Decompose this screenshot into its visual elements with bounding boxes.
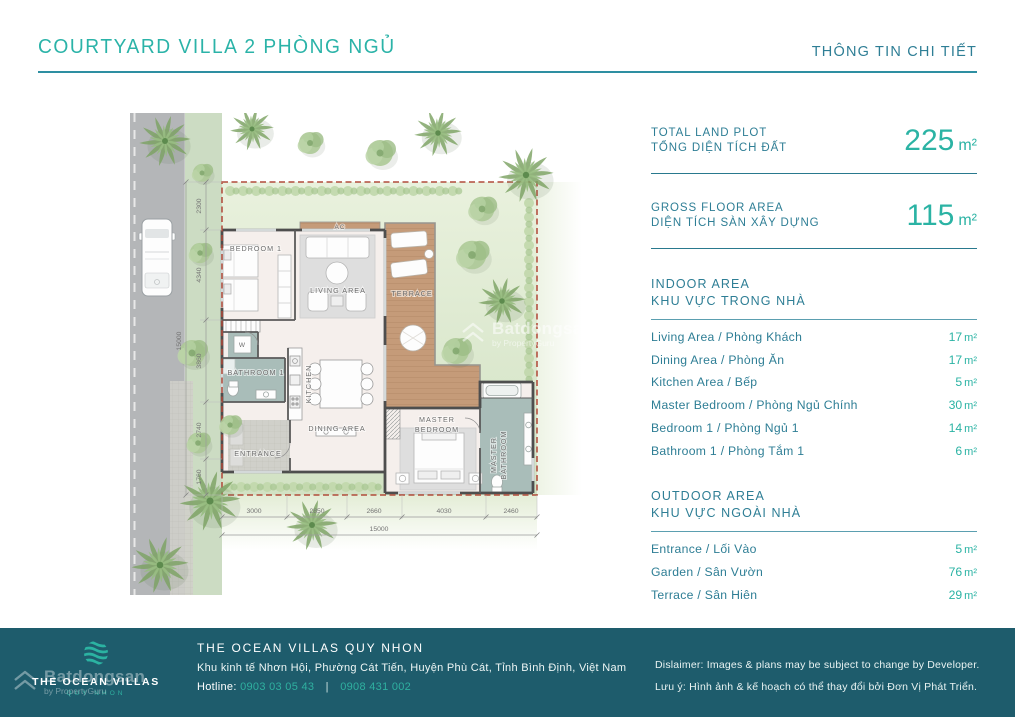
section-title-en: INDOOR AREA (651, 276, 977, 293)
details-panel: TOTAL LAND PLOT TỔNG DIỆN TÍCH ĐẤT 225m²… (651, 126, 977, 607)
room-label-kitchen: KITCHEN (304, 365, 313, 404)
section-divider (651, 319, 977, 320)
hotline-phone-1: 0903 03 05 43 (240, 681, 314, 693)
room-label-master-bedroom: MASTER (419, 415, 455, 424)
section-title-vi: KHU VỰC TRONG NHÀ (651, 293, 977, 310)
room-label-dining: DINING AREA (308, 424, 365, 433)
section-title-vi: KHU VỰC NGOÀI NHÀ (651, 505, 977, 522)
dim-label-total: 15000 (176, 331, 183, 350)
logo-text-line2: QUY NHON (30, 690, 162, 697)
dim-label-total: 15000 (370, 526, 389, 533)
stat-label-vi: TỔNG DIỆN TÍCH ĐẤT (651, 141, 787, 156)
ocean-villas-logo: THE OCEAN VILLAS QUY NHON (30, 638, 162, 697)
stat-value: 115m² (907, 201, 977, 236)
floor-plan-illustration: 3000 2850 2660 4030 2460 15000 2300 4340… (130, 113, 610, 595)
disclaimer-en: Dislaimer: Images & plans may be subject… (655, 654, 979, 676)
dim-label: 2300 (196, 198, 203, 213)
garden-fade-right (537, 182, 582, 495)
brochure-page: COURTYARD VILLA 2 PHÒNG NGỦ THÔNG TIN CH… (0, 0, 1015, 717)
hotline: Hotline: 0903 03 05 43 | 0908 431 002 (197, 681, 626, 693)
disclaimer: Dislaimer: Images & plans may be subject… (655, 654, 979, 698)
area-row: Entrance / Lối Vào5m² (651, 539, 977, 562)
room-label-master-bathroom: BATHROOM (499, 431, 508, 480)
hotline-phone-2: 0908 431 002 (340, 681, 411, 693)
area-row: Bedroom 1 / Phòng Ngủ 114m² (651, 418, 977, 441)
logo-text-line1: THE OCEAN VILLAS (30, 676, 162, 688)
stat-label-en: TOTAL LAND PLOT (651, 126, 787, 141)
dim-label: 4340 (196, 267, 203, 282)
area-row: Living Area / Phòng Khách17m² (651, 327, 977, 350)
stat-label-en: GROSS FLOOR AREA (651, 201, 820, 216)
floor-plan-svg: 3000 2850 2660 4030 2460 15000 2300 4340… (130, 113, 610, 595)
dim-label: 2660 (366, 508, 381, 515)
footer-info: THE OCEAN VILLAS QUY NHON Khu kinh tế Nh… (197, 641, 626, 693)
section-divider (651, 531, 977, 532)
dim-label: 2740 (196, 422, 203, 437)
wave-logo-icon (81, 638, 111, 668)
room-label-ac: AC (334, 224, 345, 231)
dim-label: 2850 (309, 508, 324, 515)
area-row: Garden / Sân Vườn76m² (651, 562, 977, 585)
stat-label-vi: DIỆN TÍCH SÀN XÂY DỰNG (651, 216, 820, 231)
stat-value: 225m² (904, 126, 977, 161)
dim-label: 1760 (196, 469, 203, 484)
room-label-bathroom1: BATHROOM 1 (228, 368, 285, 377)
area-row: Dining Area / Phòng Ăn17m² (651, 350, 977, 373)
outdoor-area-section: OUTDOOR AREA KHU VỰC NGOÀI NHÀ Entrance … (651, 488, 977, 607)
room-label-bedroom1: BEDROOM 1 (230, 244, 282, 253)
dim-label: 2460 (503, 508, 518, 515)
area-row: Bathroom 1 / Phòng Tắm 16m² (651, 441, 977, 464)
car-illustration (139, 219, 175, 296)
page-title: COURTYARD VILLA 2 PHÒNG NGỦ (38, 36, 396, 59)
dim-label: 4030 (436, 508, 451, 515)
section-title-en: OUTDOOR AREA (651, 488, 977, 505)
area-row: Master Bedroom / Phòng Ngủ Chính30m² (651, 395, 977, 418)
hotline-separator: | (326, 681, 329, 693)
company-address: Khu kinh tế Nhơn Hội, Phường Cát Tiến, H… (197, 662, 626, 674)
room-label-washer: W (239, 342, 246, 349)
stat-gross-floor-area: GROSS FLOOR AREA DIỆN TÍCH SÀN XÂY DỰNG … (651, 201, 977, 249)
living-furniture (300, 235, 375, 318)
room-label-living: LIVING AREA (310, 286, 366, 295)
disclaimer-vi: Lưu ý: Hình ảnh & kế hoạch có thể thay đ… (655, 676, 979, 698)
stat-total-land-plot: TOTAL LAND PLOT TỔNG DIỆN TÍCH ĐẤT 225m² (651, 126, 977, 174)
room-label-terrace: TERRACE (391, 289, 432, 298)
hotline-label: Hotline: (197, 681, 237, 693)
details-heading: THÔNG TIN CHI TIẾT (812, 44, 977, 60)
dim-label: 3860 (196, 353, 203, 368)
area-row: Terrace / Sân Hiên29m² (651, 585, 977, 608)
footer: THE OCEAN VILLAS QUY NHON THE OCEAN VILL… (0, 628, 1015, 717)
company-name: THE OCEAN VILLAS QUY NHON (197, 641, 626, 655)
indoor-area-section: INDOOR AREA KHU VỰC TRONG NHÀ Living Are… (651, 276, 977, 463)
room-label-master-bathroom: MASTER (489, 437, 498, 473)
room-label-entrance: ENTRANCE (234, 449, 282, 458)
dim-label: 3000 (246, 508, 261, 515)
area-row: Kitchen Area / Bếp5m² (651, 372, 977, 395)
room-label-master-bedroom: BEDROOM (415, 425, 459, 434)
garden-fade-bottom (222, 495, 537, 550)
header-divider (38, 71, 977, 73)
